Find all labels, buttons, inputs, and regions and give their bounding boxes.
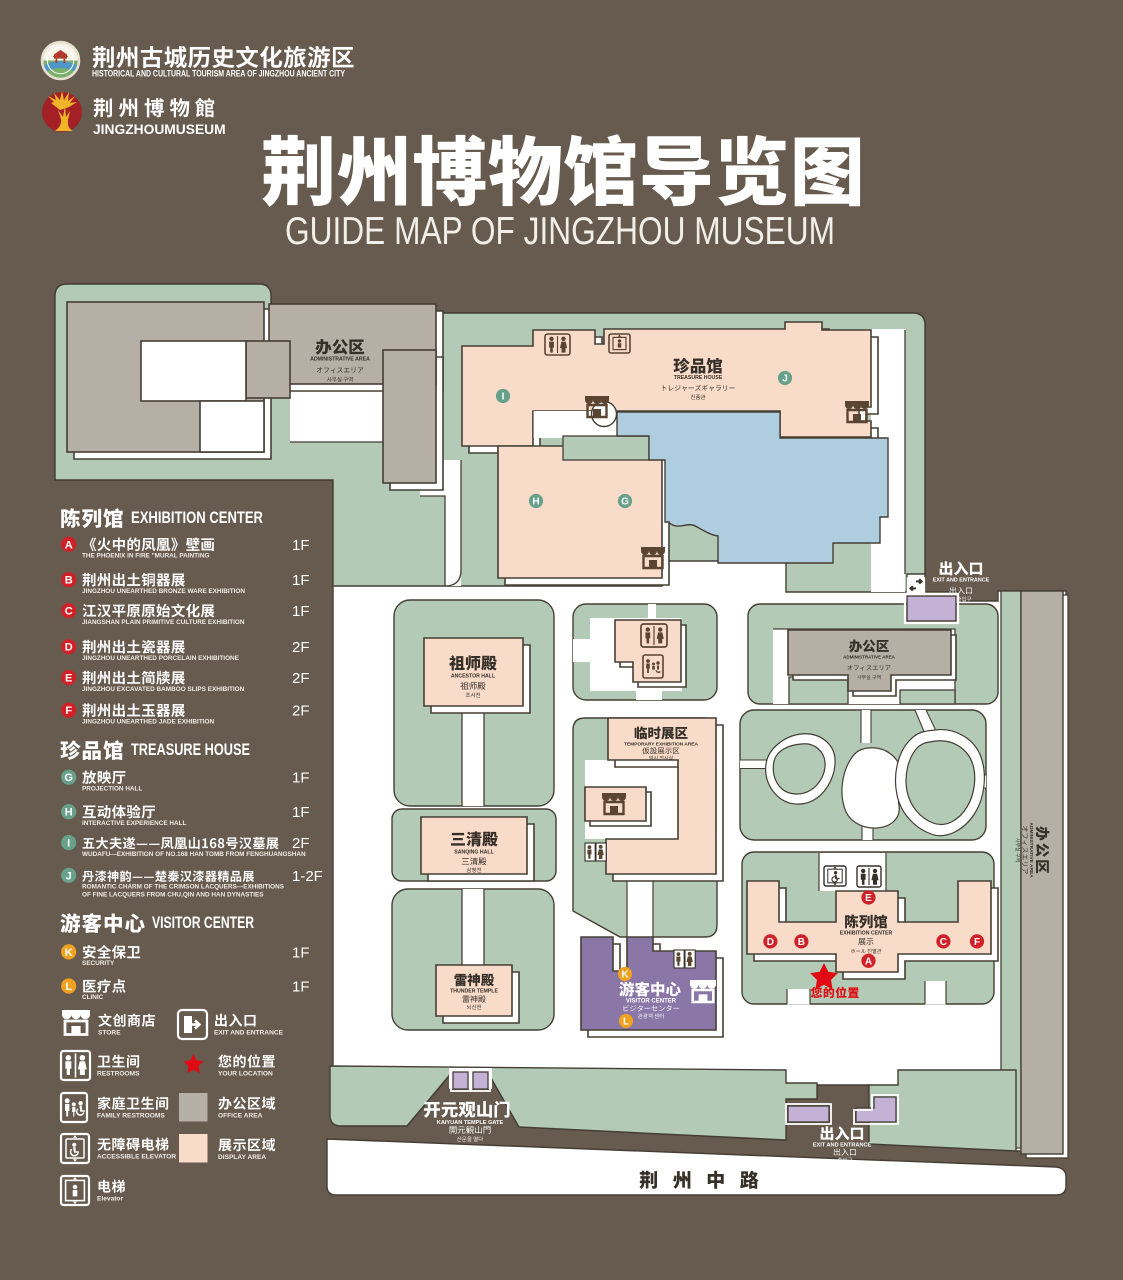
svg-text:F: F bbox=[974, 937, 980, 948]
svg-text:I: I bbox=[502, 392, 505, 403]
svg-text:ANCESTOR HALL: ANCESTOR HALL bbox=[451, 674, 496, 680]
svg-text:TEMPORARY EXHIBITION AREA: TEMPORARY EXHIBITION AREA bbox=[624, 742, 698, 748]
svg-text:2F: 2F bbox=[292, 670, 310, 687]
svg-text:JINGZHOU UNEARTHED BRONZE WARE: JINGZHOU UNEARTHED BRONZE WARE EXHIBITIO… bbox=[82, 588, 245, 595]
svg-text:ROMANTIC CHARM OF THE CRIMSON: ROMANTIC CHARM OF THE CRIMSON LACQUERS—E… bbox=[82, 884, 285, 891]
svg-text:GUIDE MAP OF JINGZHOU MUSEUM: GUIDE MAP OF JINGZHOU MUSEUM bbox=[285, 210, 835, 253]
svg-text:1-2F: 1-2F bbox=[292, 868, 323, 885]
svg-text:EXHIBITION CENTER: EXHIBITION CENTER bbox=[840, 931, 893, 937]
svg-text:L: L bbox=[623, 1017, 629, 1028]
svg-text:1F: 1F bbox=[292, 572, 310, 589]
svg-text:A: A bbox=[865, 956, 872, 967]
svg-text:ACCESSIBLE ELEVATOR: ACCESSIBLE ELEVATOR bbox=[97, 1154, 176, 1161]
svg-text:2F: 2F bbox=[292, 835, 310, 852]
svg-text:WUDAFU—EXHIBITION OF NO.168 HA: WUDAFU—EXHIBITION OF NO.168 HAN TOMB FRO… bbox=[82, 851, 306, 858]
svg-text:F: F bbox=[65, 705, 72, 717]
svg-text:RESTROOMS: RESTROOMS bbox=[97, 1071, 140, 1078]
svg-text:EXHIBITION CENTER: EXHIBITION CENTER bbox=[131, 509, 263, 527]
svg-text:EXIT AND ENTRANCE: EXIT AND ENTRANCE bbox=[933, 578, 990, 584]
svg-text:EXIT AND ENTRANCE: EXIT AND ENTRANCE bbox=[214, 1030, 284, 1037]
svg-text:PROJECTION HALL: PROJECTION HALL bbox=[82, 785, 142, 792]
svg-text:C: C bbox=[940, 937, 947, 948]
svg-text:K: K bbox=[621, 970, 629, 981]
svg-text:JIANGSHAN PLAIN PRIMITIVE CULT: JIANGSHAN PLAIN PRIMITIVE CULTURE EXHIBI… bbox=[82, 619, 245, 626]
svg-text:TREASURE HOUSE: TREASURE HOUSE bbox=[674, 375, 723, 381]
svg-text:G: G bbox=[64, 772, 73, 784]
svg-text:ADMINISTRATIVE AREA: ADMINISTRATIVE AREA bbox=[310, 357, 370, 363]
svg-text:L: L bbox=[65, 981, 72, 993]
svg-text:ADMINISTRATIVE AREA: ADMINISTRATIVE AREA bbox=[843, 655, 896, 660]
svg-text:G: G bbox=[621, 497, 629, 508]
svg-text:JINGZHOUMUSEUM: JINGZHOUMUSEUM bbox=[93, 122, 226, 137]
svg-text:OFFICE AREA: OFFICE AREA bbox=[218, 1113, 263, 1120]
svg-text:C: C bbox=[65, 606, 73, 618]
svg-text:INTERACTIVE EXPERIENCE HALL: INTERACTIVE EXPERIENCE HALL bbox=[82, 820, 186, 827]
svg-text:SANQING HALL: SANQING HALL bbox=[454, 850, 494, 856]
svg-text:DISPLAY AREA: DISPLAY AREA bbox=[218, 1154, 266, 1161]
svg-text:ADMINISTRATIVE AREA: ADMINISTRATIVE AREA bbox=[1028, 822, 1034, 878]
svg-text:2F: 2F bbox=[292, 639, 310, 656]
svg-text:B: B bbox=[65, 575, 73, 587]
svg-text:D: D bbox=[767, 937, 774, 948]
svg-text:OF FINE LACQUERS FROM CHU,QIN: OF FINE LACQUERS FROM CHU,QIN AND HAN DY… bbox=[82, 892, 264, 899]
svg-text:VISITOR CENTER: VISITOR CENTER bbox=[626, 998, 677, 1004]
svg-text:A: A bbox=[65, 539, 73, 551]
svg-text:EXIT AND ENTRANCE: EXIT AND ENTRANCE bbox=[813, 1143, 872, 1149]
svg-text:1F: 1F bbox=[292, 603, 310, 620]
svg-text:H: H bbox=[65, 807, 73, 819]
svg-text:J: J bbox=[782, 374, 788, 385]
svg-text:STORE: STORE bbox=[98, 1030, 121, 1037]
svg-text:THUNDER TEMPLE: THUNDER TEMPLE bbox=[450, 989, 498, 995]
svg-text:FAMILY RESTROOMS: FAMILY RESTROOMS bbox=[97, 1113, 165, 1120]
svg-text:SECURITY: SECURITY bbox=[82, 960, 115, 967]
svg-text:E: E bbox=[865, 893, 872, 904]
svg-text:2F: 2F bbox=[292, 703, 310, 720]
svg-text:H: H bbox=[532, 497, 539, 508]
svg-text:YOUR LOCATION: YOUR LOCATION bbox=[218, 1071, 273, 1078]
svg-text:HISTORICAL AND CULTURAL TOURIS: HISTORICAL AND CULTURAL TOURISM AREA OF … bbox=[92, 69, 345, 79]
svg-text:1F: 1F bbox=[292, 537, 310, 554]
svg-text:THE PHOENIX IN FIRE "MURAL PAI: THE PHOENIX IN FIRE "MURAL PAINTING bbox=[82, 553, 209, 560]
svg-text:J: J bbox=[66, 870, 72, 882]
svg-text:D: D bbox=[65, 642, 73, 654]
svg-text:1F: 1F bbox=[292, 770, 310, 787]
svg-text:1F: 1F bbox=[292, 979, 310, 996]
svg-text:KAIYUAN TEMPLE GATE: KAIYUAN TEMPLE GATE bbox=[437, 1120, 504, 1126]
svg-text:B: B bbox=[798, 937, 805, 948]
svg-text:1F: 1F bbox=[292, 944, 310, 961]
svg-text:I: I bbox=[67, 838, 70, 850]
svg-text:JINGZHOU EXCAVATED BAMBOO SLIP: JINGZHOU EXCAVATED BAMBOO SLIPS EXHIBITI… bbox=[82, 686, 245, 693]
svg-text:E: E bbox=[65, 673, 72, 685]
svg-text:CLINIC: CLINIC bbox=[82, 994, 104, 1001]
svg-text:JINGZHOU UNEARTHED PORCELAIN E: JINGZHOU UNEARTHED PORCELAIN EXHIBITIONE bbox=[82, 655, 240, 662]
svg-text:1F: 1F bbox=[292, 804, 310, 821]
svg-text:Elevator: Elevator bbox=[97, 1196, 123, 1203]
svg-text:VISITOR CENTER: VISITOR CENTER bbox=[152, 914, 254, 932]
svg-text:K: K bbox=[65, 947, 73, 959]
svg-text:TREASURE HOUSE: TREASURE HOUSE bbox=[131, 741, 250, 759]
svg-text:JINGZHOU UNEARTHED JADE EXHIBI: JINGZHOU UNEARTHED JADE EXHIBITION bbox=[82, 718, 214, 725]
